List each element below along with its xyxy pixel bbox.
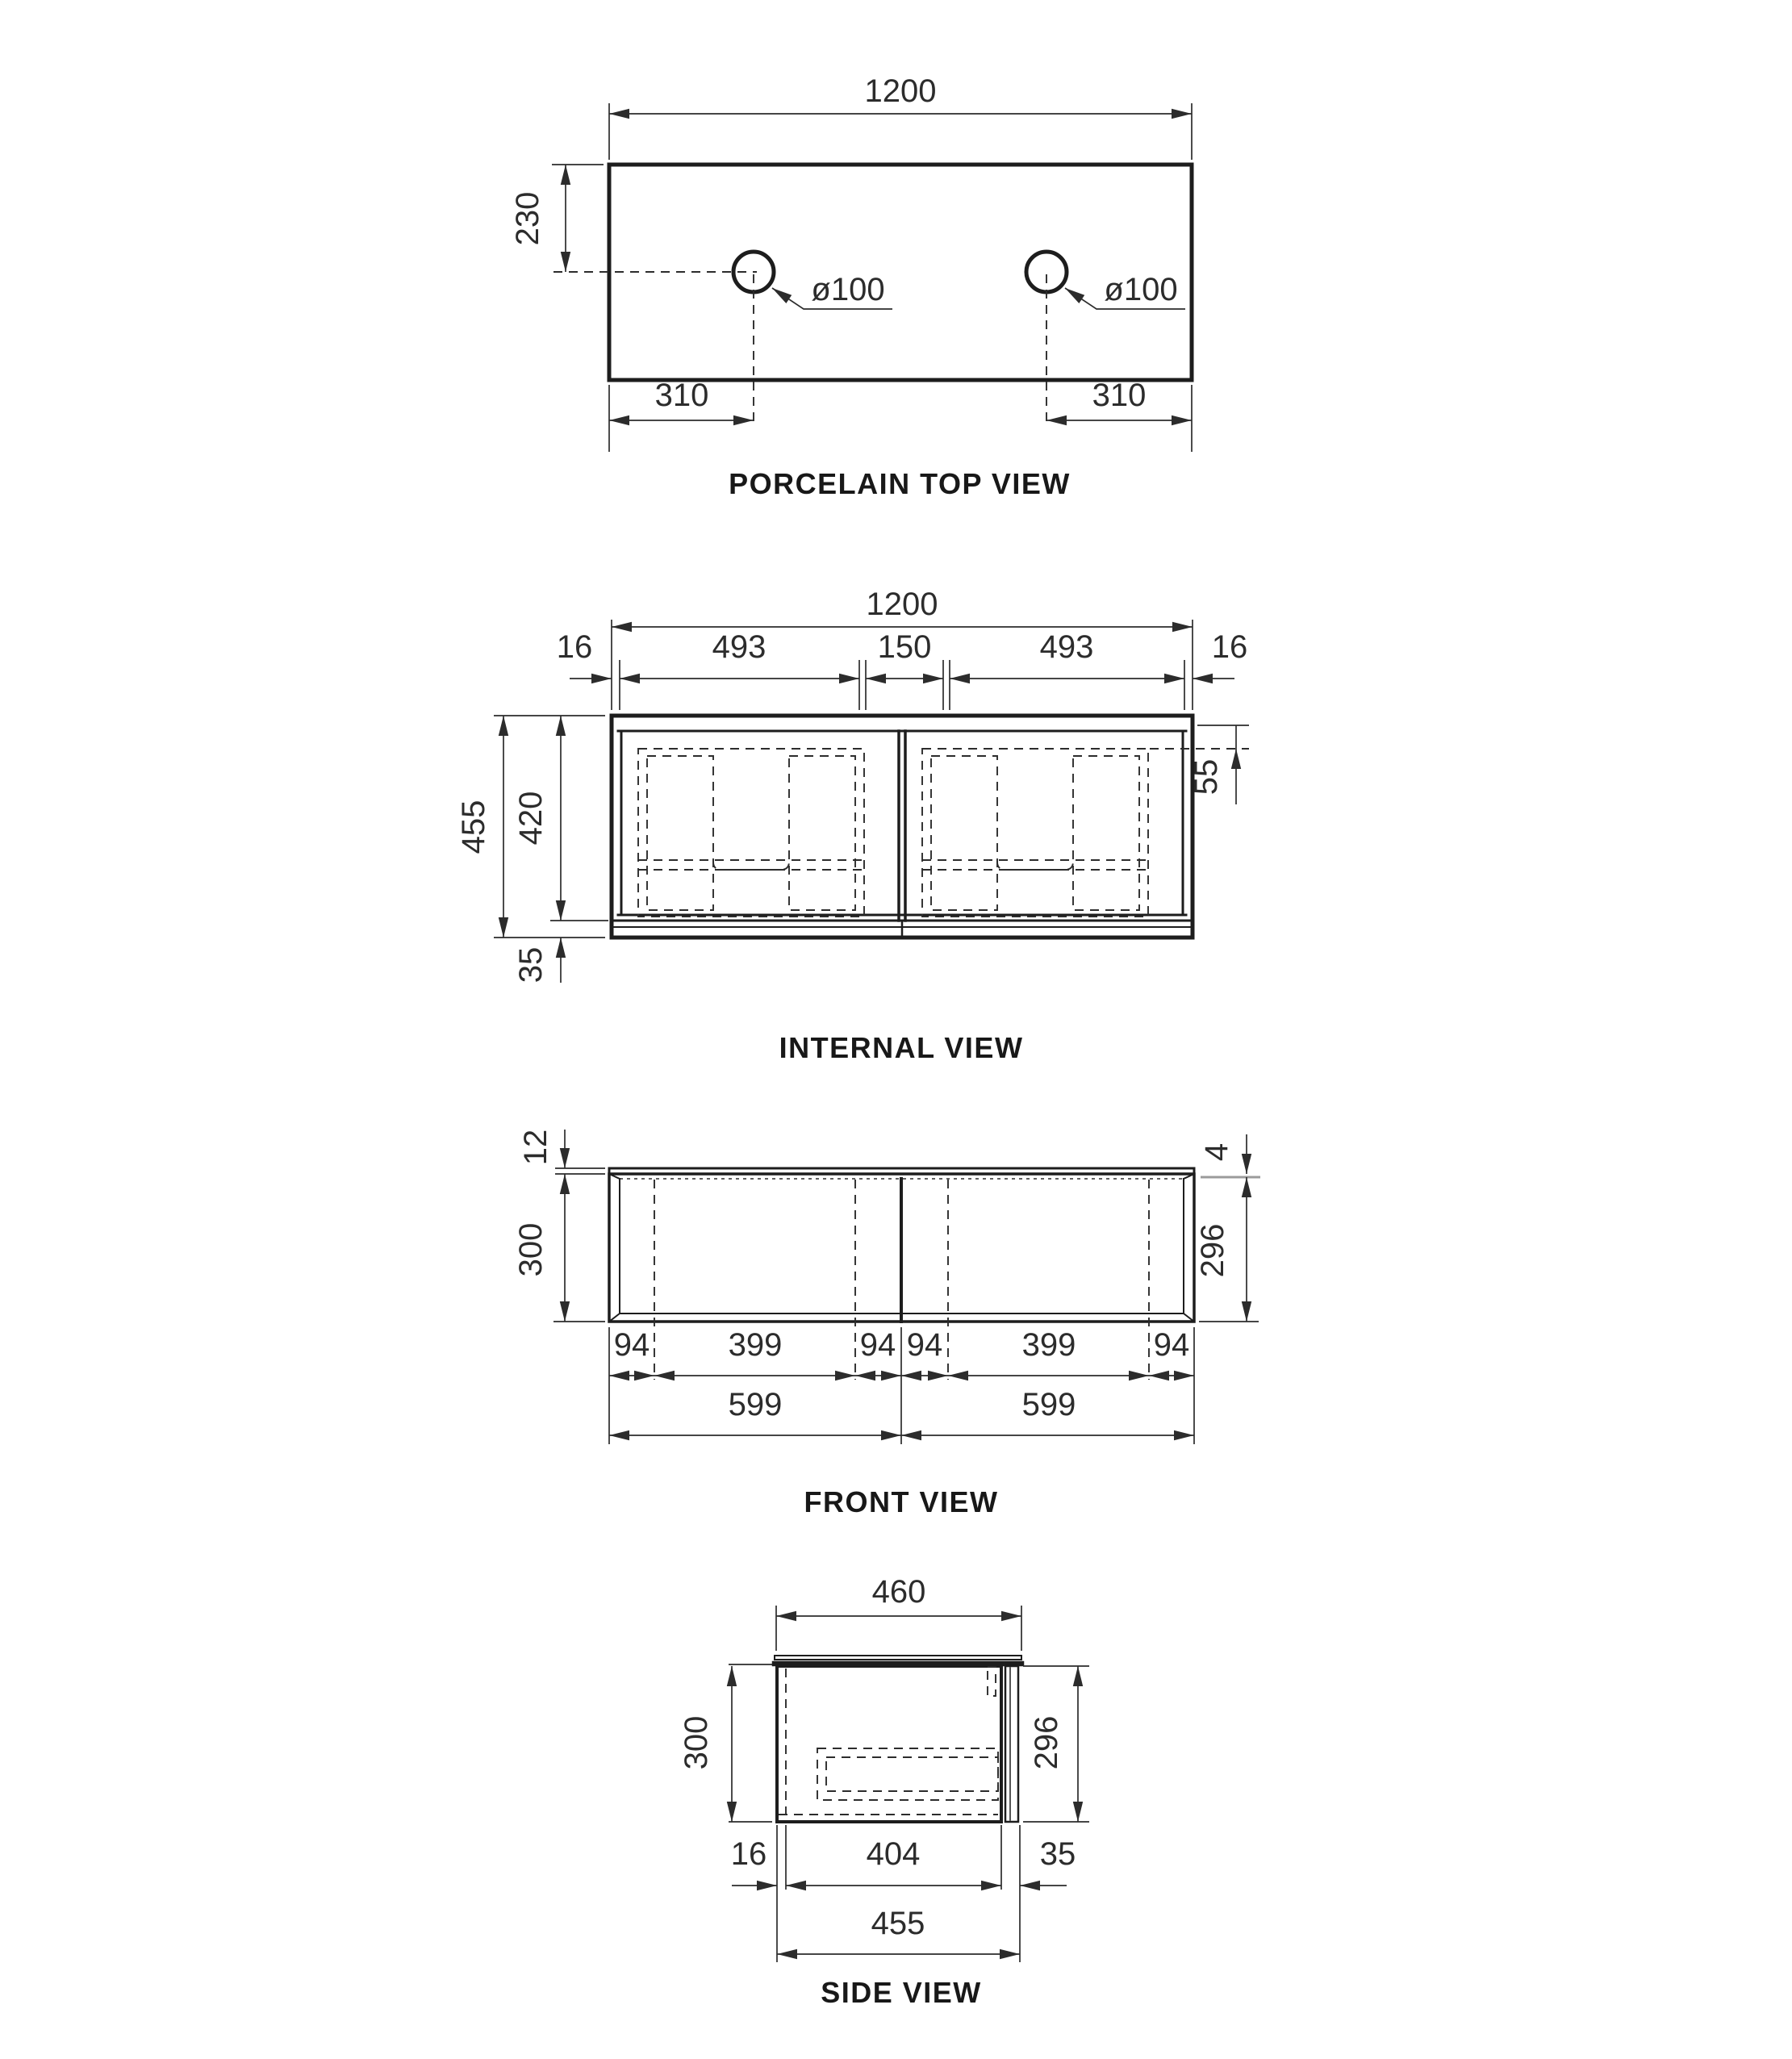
view-title-front: FRONT VIEW: [804, 1485, 999, 1518]
dim-hole-offset-front: 230: [510, 165, 604, 272]
drawer-runner-dashed: [789, 756, 855, 910]
dim-front-top-thickness: 12: [518, 1130, 605, 1174]
dim-front-top-reveal: 4: [1199, 1134, 1260, 1177]
dim-side-door-height: 296: [1023, 1666, 1089, 1822]
dim-front-segment-row: 94 399 94 94 399 94: [609, 1327, 1194, 1444]
dim-front-carcass-height: 300: [513, 1174, 605, 1322]
dim-label: 420: [513, 791, 549, 846]
view-title-side: SIDE VIEW: [821, 1976, 982, 2009]
dim-label: 35: [513, 947, 549, 984]
dim-label: 300: [679, 1716, 714, 1770]
dim-label: 455: [456, 800, 491, 854]
dim-label: 296: [1195, 1224, 1230, 1278]
drawer-hidden-outline-right: [922, 749, 1148, 917]
door-side-profile: [1005, 1666, 1018, 1822]
dim-label: 16: [731, 1836, 767, 1872]
leader-hole-diameter-right: ø100: [1065, 272, 1185, 309]
dim-label: 94: [907, 1327, 943, 1363]
dim-internal-segments: 16 493 150 493 16: [557, 629, 1248, 710]
dim-label: 12: [518, 1130, 553, 1166]
dim-label: 455: [871, 1906, 925, 1941]
dim-label: 55: [1188, 759, 1224, 796]
basin-hole-right: [1026, 252, 1067, 292]
side-view: 460 300 296 16: [679, 1574, 1089, 2009]
drawer-recess-dashed: [997, 860, 1073, 870]
dim-label: 150: [878, 629, 932, 665]
dim-label: 1200: [865, 73, 937, 109]
drawer-profile-dashed: [817, 1748, 998, 1800]
front-view: 12 300 4 296 94 399 94 94: [513, 1130, 1260, 1518]
dim-label: 296: [1029, 1716, 1064, 1770]
dim-label: 493: [712, 629, 767, 665]
dim-label: 94: [614, 1327, 650, 1363]
benchtop-side-profile: [775, 1656, 1021, 1660]
technical-drawing: 1200 230 ø100 ø100 310 310 PORCELAIN TOP…: [0, 0, 1792, 2059]
side-body-outline: [777, 1666, 1001, 1822]
drawer-runner-dashed: [931, 756, 997, 910]
dim-label: 4: [1199, 1143, 1234, 1161]
dim-hole-offset-right: 310: [1046, 378, 1192, 452]
dim-label: ø100: [1104, 272, 1177, 307]
dim-label: 310: [655, 378, 709, 413]
drawer-box-dashed: [922, 749, 1148, 917]
dim-hole-offset-left: 310: [609, 378, 754, 452]
dim-label: 310: [1092, 378, 1147, 413]
dim-label: 94: [1154, 1327, 1190, 1363]
dim-label: 399: [1022, 1327, 1076, 1363]
drawer-box-dashed: [638, 749, 864, 917]
view-title-top: PORCELAIN TOP VIEW: [729, 467, 1071, 500]
dim-label: 399: [729, 1327, 783, 1363]
dim-label: 599: [1022, 1387, 1076, 1422]
dim-label: 460: [872, 1574, 926, 1610]
bracket-dashed: [988, 1667, 996, 1696]
dim-internal-door-height: 420: [513, 716, 608, 921]
dim-label: 230: [510, 192, 545, 246]
dim-internal-bottom-rail: 35: [513, 938, 561, 983]
dim-label: 599: [729, 1387, 783, 1422]
dim-label: 94: [860, 1327, 896, 1363]
drawer-recess-dashed: [713, 860, 789, 870]
dim-side-top-depth: 460: [776, 1574, 1021, 1651]
dim-side-carcass-height: 300: [679, 1664, 772, 1822]
drawer-profile-inner-dashed: [826, 1757, 998, 1791]
dim-label: ø100: [811, 272, 884, 307]
internal-view: 1200 16 493 150 493 16 455: [456, 587, 1249, 1064]
dim-label: 1200: [867, 587, 938, 622]
carcass-outline: [612, 716, 1193, 938]
dim-label: 404: [867, 1836, 921, 1872]
dim-top-overall-width: 1200: [609, 73, 1192, 160]
drawing-sheet: 1200 230 ø100 ø100 310 310 PORCELAIN TOP…: [0, 0, 1792, 2059]
drawer-runner-dashed: [647, 756, 713, 910]
leader-hole-diameter-left: ø100: [772, 272, 892, 309]
dim-internal-top-offset: 55: [1150, 725, 1249, 804]
dim-label: 300: [513, 1223, 549, 1277]
porcelain-top-view: 1200 230 ø100 ø100 310 310 PORCELAIN TOP…: [510, 73, 1192, 500]
drawer-hidden-outline-left: [638, 749, 864, 917]
drawer-runner-dashed: [1073, 756, 1139, 910]
dim-front-door-height: 296: [1195, 1177, 1259, 1322]
dim-label: 35: [1040, 1836, 1076, 1872]
dim-label: 16: [1212, 629, 1248, 665]
dim-label: 493: [1040, 629, 1094, 665]
view-title-internal: INTERNAL VIEW: [779, 1031, 1024, 1064]
dim-side-bottom-row: 16 404 35 455: [731, 1825, 1076, 1962]
dim-label: 16: [557, 629, 593, 665]
